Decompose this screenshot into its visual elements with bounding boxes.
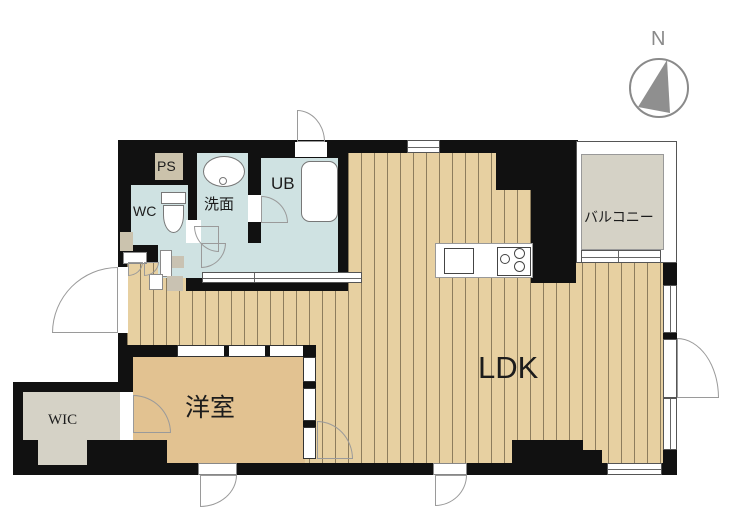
western-room-label: 洋室 bbox=[185, 388, 235, 424]
stove-burner-icon bbox=[514, 261, 525, 272]
floor-under-balcony bbox=[576, 263, 663, 283]
below-ub-wet bbox=[261, 223, 338, 272]
floor-plan: PS WC 洗面 UB バルコニー bbox=[0, 0, 738, 529]
compass-n-label: N bbox=[651, 28, 665, 51]
ldk-label: LDK bbox=[478, 350, 538, 386]
wall-top-right-column bbox=[496, 140, 578, 190]
partition-right-cap bbox=[303, 345, 316, 357]
wall-western-top-left bbox=[133, 345, 177, 357]
door-arc-entrance bbox=[52, 267, 118, 333]
compass bbox=[625, 25, 725, 125]
wall-western-notch bbox=[133, 440, 167, 463]
genkan-cabinet bbox=[120, 232, 133, 251]
door-arc-western-bottom bbox=[200, 475, 237, 507]
ps-label: PS bbox=[157, 158, 176, 174]
window-bottom bbox=[607, 463, 662, 475]
genkan-cabinet bbox=[167, 276, 183, 291]
window-right-lower bbox=[663, 398, 677, 450]
genkan-cabinet bbox=[172, 256, 184, 268]
ub-door-opening bbox=[248, 195, 261, 222]
wc-label: WC bbox=[133, 203, 156, 219]
washbasin-faucet-icon bbox=[219, 177, 227, 185]
partition-right bbox=[303, 388, 316, 421]
door-arc-ldk-bottom bbox=[435, 475, 467, 506]
ub-label: UB bbox=[271, 174, 295, 194]
wall-kitchen-right-column bbox=[531, 190, 578, 285]
north-arrow-icon bbox=[638, 60, 670, 113]
wall-right bbox=[663, 263, 677, 285]
floor-ldk-band bbox=[348, 283, 663, 291]
door-arc-ub-outer bbox=[297, 110, 325, 142]
wic-label: WIC bbox=[48, 412, 77, 429]
wall-ldk-step bbox=[512, 440, 583, 463]
door-arc-right bbox=[677, 338, 719, 398]
door-opening-right bbox=[663, 339, 677, 398]
stove-burner-icon bbox=[514, 248, 525, 259]
washroom-label: 洗面 bbox=[204, 193, 234, 214]
western-bottom-door-opening bbox=[198, 463, 237, 475]
stove-burner-icon bbox=[500, 254, 510, 264]
floor-ldk-top bbox=[348, 153, 496, 190]
room-wic-extension bbox=[38, 440, 87, 465]
wall-ldk-step bbox=[583, 450, 602, 463]
sliding-door-corridor bbox=[202, 272, 362, 283]
partition-tick bbox=[224, 346, 229, 356]
kitchen-sink-icon bbox=[444, 248, 474, 274]
partition-right bbox=[303, 357, 316, 382]
partition-western-top bbox=[177, 345, 305, 357]
balcony-label: バルコニー bbox=[584, 207, 654, 227]
balcony-window bbox=[581, 250, 661, 263]
window-top bbox=[407, 140, 440, 153]
bathtub-icon bbox=[301, 161, 338, 222]
ub-outer-door-opening bbox=[295, 142, 327, 157]
floor-ldk-kitchen bbox=[348, 190, 531, 243]
toilet-tank bbox=[161, 192, 186, 204]
window-right-upper bbox=[663, 285, 677, 333]
wic-door-opening bbox=[120, 392, 133, 440]
partition-tick bbox=[265, 346, 270, 356]
partition-right bbox=[303, 427, 316, 459]
room-balcony bbox=[581, 154, 664, 250]
genkan-cabinet bbox=[160, 250, 172, 277]
ldk-bottom-door-opening bbox=[433, 463, 467, 475]
genkan-cabinet bbox=[149, 274, 163, 290]
